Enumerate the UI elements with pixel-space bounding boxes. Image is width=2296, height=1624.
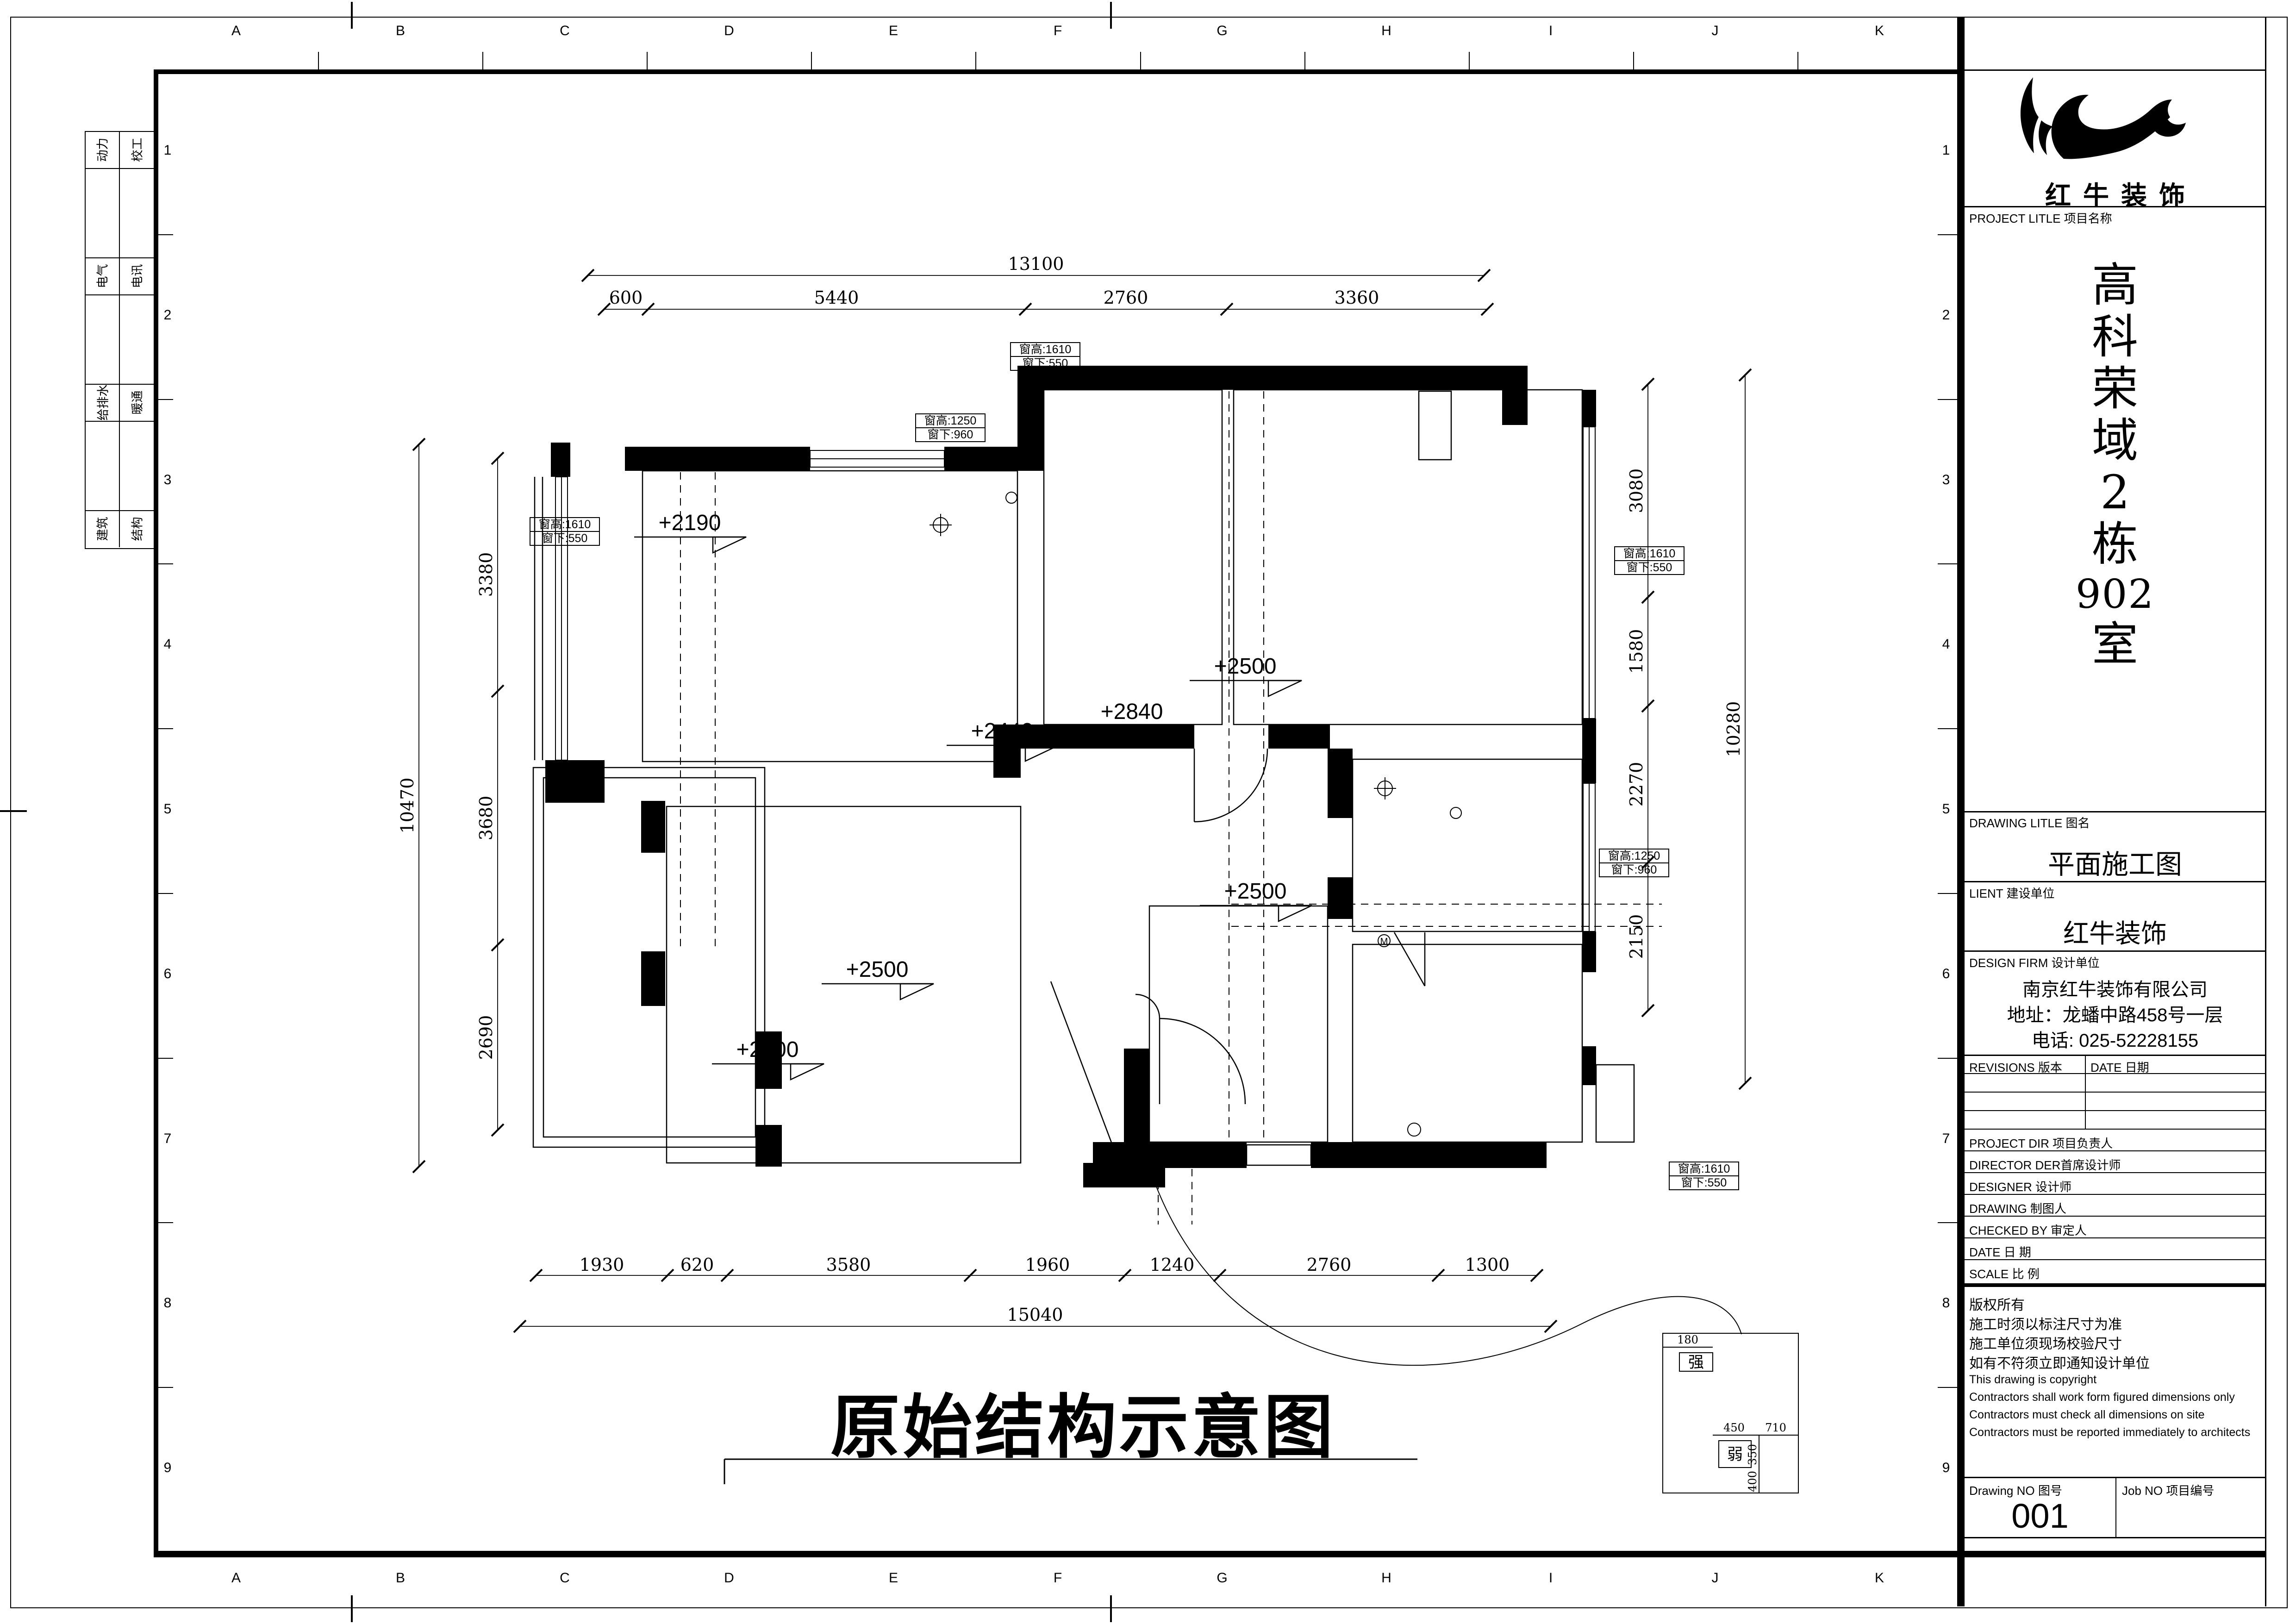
dim-bottom-seg: 2760 [1307,1255,1352,1275]
dim-left-overall: 10470 [397,778,418,834]
cable-leader-line [1149,1168,1741,1365]
registration-tick [351,2,353,29]
grid-number: 6 [1938,966,1954,982]
grid-letter: B [389,23,412,39]
titleblock-divider-bar [1957,17,1965,1606]
dim-left-seg: 2690 [476,1015,496,1060]
dim-left-seg: 3680 [476,796,496,841]
copyright-line: Contractors must be reported immediately… [1969,1426,2250,1439]
project-label: PROJECT LITLE 项目名称 [1969,209,2112,226]
titleblock-line [1965,1172,2265,1173]
number-divider [2115,1477,2116,1537]
dim-right-overall: 10280 [1723,701,1744,757]
discipline-cell: 给排水 [85,384,119,421]
legend-dim: 400 [1746,1471,1759,1492]
plan-partitions [533,390,1634,1165]
staff-row: DESIGNER 设计师 [1969,1178,2071,1195]
copyright-line: 版权所有 [1969,1293,2025,1314]
grid-tick [1938,563,1957,564]
grid-tick [1938,399,1957,400]
level-label: +2500 [736,1037,799,1062]
staff-row: DIRECTOR DER首席设计师 [1969,1156,2121,1173]
window-tag-text: 窗高:1610 [1623,547,1676,560]
dim-top-seg: 600 [609,287,643,308]
plan-dashed-lines [680,391,1662,1224]
grid-tick [154,893,173,894]
grid-letter: K [1868,1570,1891,1586]
titleblock-line [1965,950,2265,952]
dim-right-seg: 3080 [1626,468,1647,513]
grid-letter: C [553,1570,576,1586]
grid-tick [1938,893,1957,894]
job-no-label: Job NO 项目编号 [2122,1481,2214,1499]
titleblock-line [1965,1055,2265,1056]
grid-letter: D [717,1570,741,1586]
dim-top-seg: 5440 [814,287,859,308]
signature-line [85,294,154,295]
project-name-char: 2 [2100,467,2130,518]
grid-tick [154,234,173,235]
grid-letter: H [1375,1570,1398,1586]
grid-number: 7 [159,1131,176,1147]
grid-tick [1633,52,1634,69]
logo-icon [2004,76,2203,176]
copyright-line: Contractors must check all dimensions on… [1969,1408,2205,1422]
dimension-lines [419,275,1745,1326]
grid-number: 2 [1938,307,1954,323]
dim-top-overall: 13100 [1008,254,1064,274]
grid-tick [1938,1222,1957,1223]
discipline-cell: 结构 [119,510,154,547]
project-name-char: 科 [2092,311,2138,363]
titleblock-line [1965,811,2265,812]
grid-tick [647,52,648,69]
dim-bottom-overall: 15040 [1007,1305,1063,1325]
grid-letter: C [553,23,576,39]
staff-row: DRAWING 制图人 [1969,1199,2066,1217]
grid-letter: F [1046,23,1069,39]
grid-number: 4 [1938,637,1954,652]
level-label: +2500 [1224,879,1287,904]
copyright-line: 施工单位须现场校验尺寸 [1969,1332,2122,1353]
dim-bottom-seg: 1930 [580,1255,624,1275]
registration-tick [1110,1595,1112,1622]
grid-letter: I [1539,1570,1562,1586]
legend-dim: 710 [1765,1421,1786,1434]
grid-letter: B [389,1570,412,1586]
titleblock-line [1965,1237,2265,1238]
grid-tick [154,728,173,729]
plan-windows [555,427,1595,931]
staff-row: CHECKED BY 审定人 [1969,1221,2087,1238]
discipline-cell: 校工 [119,131,154,168]
grid-letter: J [1703,1570,1727,1586]
grid-number: 5 [1938,801,1954,817]
grid-number: 1 [159,143,176,158]
grid-letter: H [1375,23,1398,39]
titleblock-line [1965,1092,2265,1093]
grid-tick [1140,52,1141,69]
grid-number: 8 [159,1295,176,1311]
titleblock-line [1965,881,2265,882]
staff-row: SCALE 比 例 [1969,1265,2040,1282]
titleblock-line [1965,1259,2265,1260]
window-tag-text: 窗高:1250 [1608,849,1660,862]
grid-number: 9 [159,1460,176,1476]
grid-tick [1938,728,1957,729]
discipline-cell: 电讯 [119,257,154,294]
titleblock-line [1965,1150,2265,1151]
discipline-cell: 暖通 [119,384,154,421]
signature-line [85,421,154,422]
window-tag-text: 窗下:550 [1627,561,1672,574]
grid-number: 8 [1938,1295,1954,1311]
copyright-line: This drawing is copyright [1969,1373,2096,1387]
grid-letter: A [225,23,248,39]
drawing-title: 原始结构示意图 [713,1371,1454,1472]
titleblock-right-border [2265,17,2266,1606]
registration-tick [1110,2,1112,29]
dim-right-seg: 1580 [1626,629,1647,674]
registration-tick [0,810,27,812]
window-tag-text: 窗下:960 [928,428,973,441]
grid-tick [1797,52,1798,69]
grid-tick [1469,52,1470,69]
dim-right-seg: 2150 [1626,914,1647,959]
grid-tick [975,52,976,69]
titleblock-line [1965,1216,2265,1217]
registration-tick [351,1595,353,1622]
dim-right-seg: 2270 [1626,762,1647,807]
strong-current-label: 强 [1688,1354,1704,1371]
legend-dim: 450 [1723,1421,1745,1434]
signature-line [85,168,154,169]
staff-row: PROJECT DIR 项目负责人 [1969,1134,2113,1151]
titleblock-line [1965,1110,2265,1111]
project-name-char: 902 [2076,570,2154,618]
grid-tick [154,1058,173,1059]
client-label: LIENT 建设单位 [1969,884,2054,901]
dim-bottom-seg: 620 [680,1255,714,1275]
grid-number: 7 [1938,1131,1954,1147]
grid-number: 2 [159,307,176,323]
window-tag-text: 窗高:1250 [924,414,977,427]
frame-top [154,69,1962,74]
staff-row: DATE 日 期 [1969,1243,2031,1260]
grid-number: 3 [159,472,176,488]
grid-number: 4 [159,637,176,652]
grid-tick [154,563,173,564]
drawing-name-label: DRAWING LITLE 图名 [1969,814,2090,831]
window-tag-text: 窗下:550 [1681,1176,1727,1189]
grid-letter: D [717,23,741,39]
copyright-line: Contractors shall work form figured dime… [1969,1391,2235,1404]
level-label: +2440 [971,719,1034,743]
dim-top-seg: 2760 [1104,287,1148,308]
design-firm-name: 南京红牛装饰有限公司 [1965,974,2265,1001]
window-tag-text: 窗高:1610 [539,518,591,531]
window-tag-text: 窗下:550 [1023,357,1068,370]
legend-dim: 180 [1677,1333,1698,1346]
dim-left-seg: 3380 [476,552,496,597]
plan-walls [545,366,1596,1187]
floor-plan: M 13100 600 5440 2760 [393,204,1833,1509]
grid-tick [482,52,483,69]
grid-letter: E [882,1570,905,1586]
grid-number: 9 [1938,1460,1954,1476]
dim-bottom-seg: 1960 [1025,1255,1070,1275]
design-firm-address: 地址：龙蟠中路458号一层 [1965,1000,2265,1027]
discipline-cell: 建筑 [85,510,119,547]
grid-tick [1304,52,1305,69]
copyright-line: 如有不符须立即通知设计单位 [1969,1352,2150,1372]
drawing-sheet: A B C D E F G H I J K A B C D E F G H I … [0,0,2296,1624]
titleblock-line [1965,1194,2265,1195]
grid-tick [318,52,319,69]
weak-current-label: 弱 [1727,1446,1743,1463]
grid-letter: K [1868,23,1891,39]
project-name-char: 域 [2092,415,2138,467]
grid-tick [811,52,812,69]
dim-bottom-seg: 1240 [1150,1255,1195,1275]
level-label: +2840 [1101,700,1163,724]
titleblock-thick-line [1965,1283,2265,1287]
dim-bottom-seg: 1300 [1465,1255,1510,1275]
level-label: +2500 [1214,654,1277,679]
grid-number: 3 [1938,472,1954,488]
project-name: 高 科 荣 域 2 栋 902 室 [1965,259,2265,670]
dim-top-seg: 3360 [1335,287,1379,308]
grid-letter: I [1539,23,1562,39]
grid-letter: G [1210,1570,1234,1586]
dimension-ticks [413,269,1751,1332]
window-tag-text: 窗高:1610 [1678,1162,1730,1175]
titleblock-line [1965,1129,2265,1130]
grid-number: 6 [159,966,176,982]
project-name-char: 荣 [2092,363,2138,415]
level-label: +2500 [846,957,909,982]
titleblock-line [1965,1537,2265,1538]
panel-legend [1663,1333,1798,1493]
plan-symbols: M [930,492,1461,1136]
grid-tick [154,399,173,400]
grid-tick [1938,1058,1957,1059]
signature-strip [85,131,156,549]
frame-bottom [154,1551,2266,1557]
design-firm-label: DESIGN FIRM 设计单位 [1969,954,2100,971]
client-name: 红牛装饰 [1965,913,2265,950]
legend-dim: 350 [1746,1444,1759,1465]
project-name-char: 高 [2092,259,2138,311]
discipline-cell: 动力 [85,131,119,168]
window-tag-text: 窗下:960 [1611,863,1657,876]
titleblock-line [1965,206,2265,207]
grid-tick [1938,234,1957,235]
discipline-cell: 电气 [85,257,119,294]
grid-tick [154,1387,173,1388]
grid-letter: A [225,1570,248,1586]
level-label: +2190 [659,511,721,535]
signature-divider [119,131,120,547]
grid-letter: J [1703,23,1727,39]
appliance-label: M [1380,937,1388,947]
grid-number: 5 [159,801,176,817]
design-firm-phone: 电话: 025-52228155 [1965,1025,2265,1052]
frame-top-titleblock [1965,69,2266,71]
drawing-no-value: 001 [1965,1496,2115,1536]
grid-letter: E [882,23,905,39]
drawing-name: 平面施工图 [1965,843,2265,881]
level-markers [634,537,1312,1080]
project-name-char: 栋 [2092,518,2138,570]
grid-tick [154,1222,173,1223]
grid-letter: F [1046,1570,1069,1586]
titleblock-line [1965,1477,2265,1478]
titleblock-line [1965,1073,2265,1074]
window-tag-text: 窗下:550 [542,532,588,545]
d im-bottom-seg: 3580 [826,1255,871,1275]
copyright-line: 施工时须以标注尺寸为准 [1969,1313,2122,1333]
grid-tick [1938,1387,1957,1388]
grid-number: 1 [1938,143,1954,158]
project-name-char: 室 [2092,618,2138,670]
window-tag-text: 窗高:1610 [1019,343,1072,356]
grid-letter: G [1210,23,1234,39]
